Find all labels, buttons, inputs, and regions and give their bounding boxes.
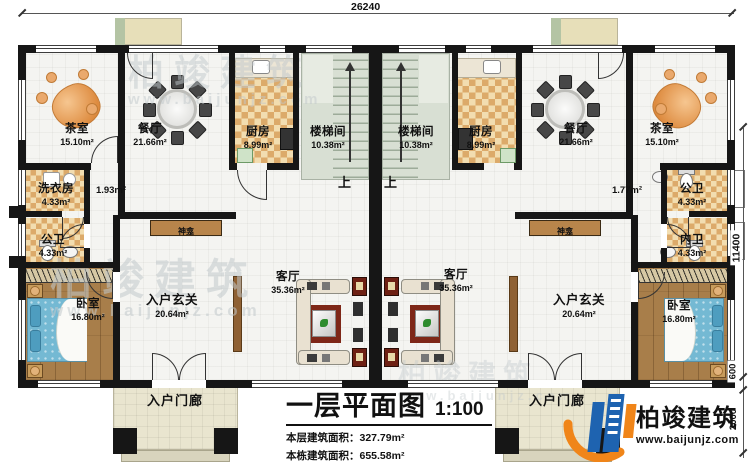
area-label-corridor-right: 1.77m²	[612, 186, 642, 197]
wall	[229, 163, 237, 170]
company-logo-text: 柏竣建筑 www.baijunjz.com	[636, 398, 739, 446]
shrine-label: 神龛	[557, 227, 573, 236]
tea-stool	[86, 103, 98, 115]
window	[655, 45, 715, 53]
top-planter-right	[551, 18, 618, 45]
porch-pier	[113, 428, 137, 454]
pillow	[712, 330, 723, 352]
window	[18, 224, 26, 256]
tea-stool	[78, 69, 89, 80]
wall	[18, 163, 91, 170]
wall	[120, 212, 236, 219]
dining-chair	[171, 131, 184, 145]
window	[306, 45, 352, 53]
cushion	[322, 354, 330, 362]
tv-cabinet	[384, 348, 399, 367]
area-label-corridor-left: 1.93m²	[96, 186, 126, 197]
dining-chair	[531, 103, 544, 117]
logo-icon	[556, 390, 644, 462]
window	[18, 80, 26, 140]
pillow	[712, 305, 723, 327]
top-planter-left	[115, 18, 182, 45]
wall	[452, 53, 458, 165]
wall	[293, 53, 299, 165]
cushion	[307, 282, 317, 290]
wall-bump	[9, 206, 18, 218]
wall	[84, 170, 90, 267]
plan-scale: 1:100	[435, 399, 484, 421]
room-label-inbath-right: 内卫4.33m²	[678, 230, 707, 258]
wall	[18, 211, 62, 217]
tv-cabinet	[352, 277, 367, 296]
stair-treads	[333, 56, 369, 178]
plant	[423, 319, 431, 327]
lamp	[713, 286, 723, 296]
tea-stool	[36, 92, 48, 104]
tea-stool	[655, 103, 667, 115]
floor-plan: 26240 11400 600 2000 柏竣建筑 www.baijunjz.c…	[0, 0, 750, 465]
dimension-line-right	[743, 128, 744, 458]
room-label-dining-left: 餐厅21.66m²	[133, 119, 167, 147]
media-unit	[353, 328, 363, 342]
porch-pier	[495, 428, 519, 454]
tea-stool	[696, 72, 707, 83]
wall-bump	[9, 256, 18, 268]
dining-chair	[559, 75, 572, 89]
stair-up-left: 上	[338, 174, 352, 192]
room-label-foyer-right: 入户玄关20.64m²	[553, 291, 605, 319]
media-unit	[353, 302, 363, 316]
window	[727, 170, 735, 205]
cushion	[421, 354, 429, 362]
foyer-partition-left	[233, 276, 242, 352]
window	[36, 45, 96, 53]
stair-up-right: 上	[384, 174, 398, 192]
dimension-right-main: 11400	[730, 231, 742, 266]
wall-center	[369, 53, 382, 380]
room-label-foyer-left: 入户玄关20.64m²	[146, 291, 198, 319]
lamp	[30, 286, 40, 296]
cushion	[421, 282, 429, 290]
window	[129, 45, 218, 53]
company-name: 柏竣建筑	[636, 398, 739, 433]
window	[260, 45, 285, 53]
room-label-living-left: 客厅35.36m²	[271, 267, 305, 295]
kitchen-sink	[252, 60, 270, 74]
room-label-bath-left: 公卫4.33m²	[39, 230, 68, 258]
planter-green-strip	[115, 18, 125, 45]
dining-chair	[171, 75, 184, 89]
wall	[18, 45, 735, 53]
wall	[631, 262, 733, 268]
media-unit	[388, 302, 398, 316]
window	[18, 300, 26, 360]
title-block: 一层平面图 1:100 本层建筑面积：327.79m² 本栋建筑面积：655.5…	[286, 384, 492, 465]
window	[727, 80, 735, 140]
stair-landing	[419, 55, 448, 103]
window	[466, 45, 491, 53]
room-label-bedroom-left: 卧室16.80m²	[71, 294, 105, 322]
door-gap	[528, 380, 582, 388]
wall	[689, 211, 733, 217]
room-label-tea-left: 茶室15.10m²	[60, 119, 94, 147]
shrine-right: 神龛	[529, 220, 601, 236]
wall	[18, 262, 120, 268]
door-gap	[113, 272, 120, 302]
tea-stool	[664, 69, 675, 80]
room-label-stair-left: 楼梯间10.38m²	[310, 122, 346, 150]
wall	[516, 53, 522, 170]
stair-landing	[303, 55, 333, 103]
planter-green-strip	[551, 18, 561, 45]
wall	[515, 212, 631, 219]
dimension-tick	[728, 9, 736, 17]
cushion	[434, 354, 444, 362]
window	[18, 170, 26, 205]
kitchen-cabinet	[237, 148, 253, 163]
tv-cabinet	[384, 277, 399, 296]
company-website: www.baijunjz.com	[636, 434, 739, 446]
wall	[660, 163, 733, 170]
room-label-kitchen-left: 厨房8.99m²	[244, 122, 273, 150]
plan-title: 一层平面图	[286, 384, 426, 423]
area-row-2: 本栋建筑面积：655.58m²	[286, 448, 492, 463]
dining-chair	[199, 103, 212, 117]
room-label-porch-left: 入户门廊	[147, 392, 203, 410]
dimension-right-step: 600	[727, 361, 738, 383]
lamp	[713, 366, 723, 376]
dining-chair	[587, 103, 600, 117]
tea-stool	[705, 92, 717, 104]
shrine-label: 神龛	[178, 227, 194, 236]
window	[38, 380, 100, 388]
door-gap	[631, 272, 638, 302]
cushion	[322, 282, 330, 290]
wall	[229, 53, 235, 170]
kitchen-cabinet	[500, 148, 516, 163]
dining-chair	[143, 103, 156, 117]
plant	[320, 319, 328, 327]
pillow	[30, 330, 41, 352]
dimension-top-label: 26240	[348, 1, 383, 13]
room-label-laundry: 洗衣房4.33m²	[38, 179, 74, 207]
kitchen-sink	[483, 60, 501, 74]
lamp	[30, 366, 40, 376]
plan-title-row: 一层平面图 1:100	[286, 384, 492, 426]
room-label-kitchen-right: 厨房8.99m²	[467, 122, 496, 150]
stair-arrow-head	[396, 62, 406, 71]
room-label-tea-right: 茶室15.10m²	[645, 119, 679, 147]
window	[533, 45, 622, 53]
room-label-stair-right: 楼梯间10.38m²	[398, 122, 434, 150]
stair-arrow	[349, 70, 351, 162]
company-logo	[556, 390, 644, 462]
window	[727, 300, 735, 360]
room-label-dining-right: 餐厅21.66m²	[559, 119, 593, 147]
window	[650, 380, 712, 388]
cushion	[307, 354, 317, 362]
room-label-bedroom-right: 卧室16.80m²	[662, 296, 696, 324]
foyer-partition-right	[509, 276, 518, 352]
dimension-line-top	[22, 13, 734, 14]
room-label-living-right: 客厅35.36m²	[439, 265, 473, 293]
porch-pier	[214, 428, 238, 454]
room-label-pubbath-right: 公卫4.33m²	[678, 179, 707, 207]
shrine-left: 神龛	[150, 220, 222, 236]
wall	[514, 163, 522, 170]
window	[399, 45, 445, 53]
tea-stool	[46, 72, 57, 83]
door-gap	[152, 380, 206, 388]
stair-arrow-head	[345, 62, 355, 71]
pillow	[30, 305, 41, 327]
area-row-1: 本层建筑面积：327.79m²	[286, 430, 492, 445]
tv-cabinet	[352, 348, 367, 367]
media-unit	[388, 328, 398, 342]
door-gap	[84, 224, 90, 248]
